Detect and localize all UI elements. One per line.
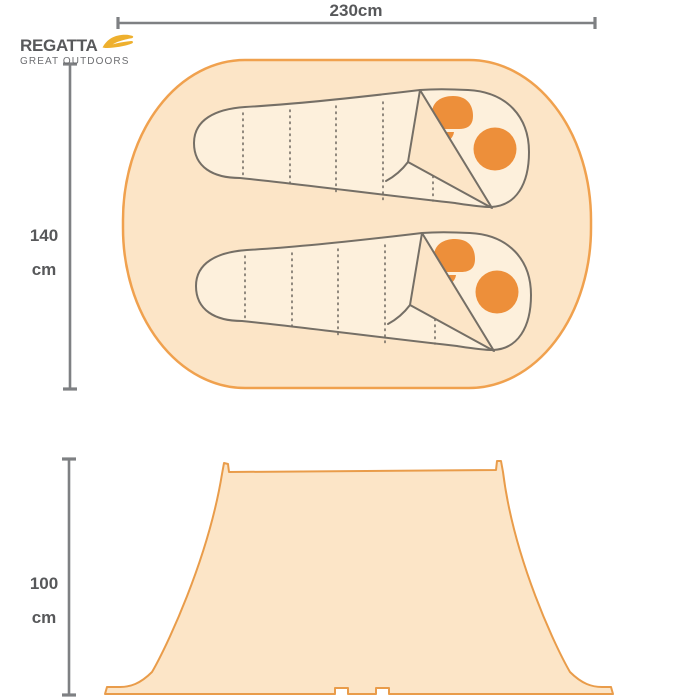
height-dimension-line — [62, 459, 76, 695]
tent-top-view — [123, 60, 591, 388]
height-dimension-label: 100 cm — [26, 558, 62, 626]
depth-dimension-label: 140 cm — [26, 210, 62, 278]
tent-side-view — [105, 461, 613, 694]
brand-logo-row: REGATTA — [20, 33, 135, 54]
product-dimension-diagram: REGATTA GREAT OUTDOORS 230cm 140 cm 100 … — [0, 0, 700, 700]
height-value: 100 — [30, 574, 58, 593]
brand-name: REGATTA — [20, 37, 98, 54]
brand-tagline: GREAT OUTDOORS — [20, 56, 135, 67]
width-dimension-label: 230cm — [296, 2, 416, 19]
tent-profile-outline — [105, 461, 613, 694]
height-unit: cm — [32, 608, 57, 627]
depth-dimension-line — [63, 64, 77, 389]
regatta-swoosh-icon — [101, 33, 135, 53]
depth-unit: cm — [32, 260, 57, 279]
brand-logo: REGATTA GREAT OUTDOORS — [20, 33, 135, 67]
depth-value: 140 — [30, 226, 58, 245]
diagram-canvas — [0, 0, 700, 700]
